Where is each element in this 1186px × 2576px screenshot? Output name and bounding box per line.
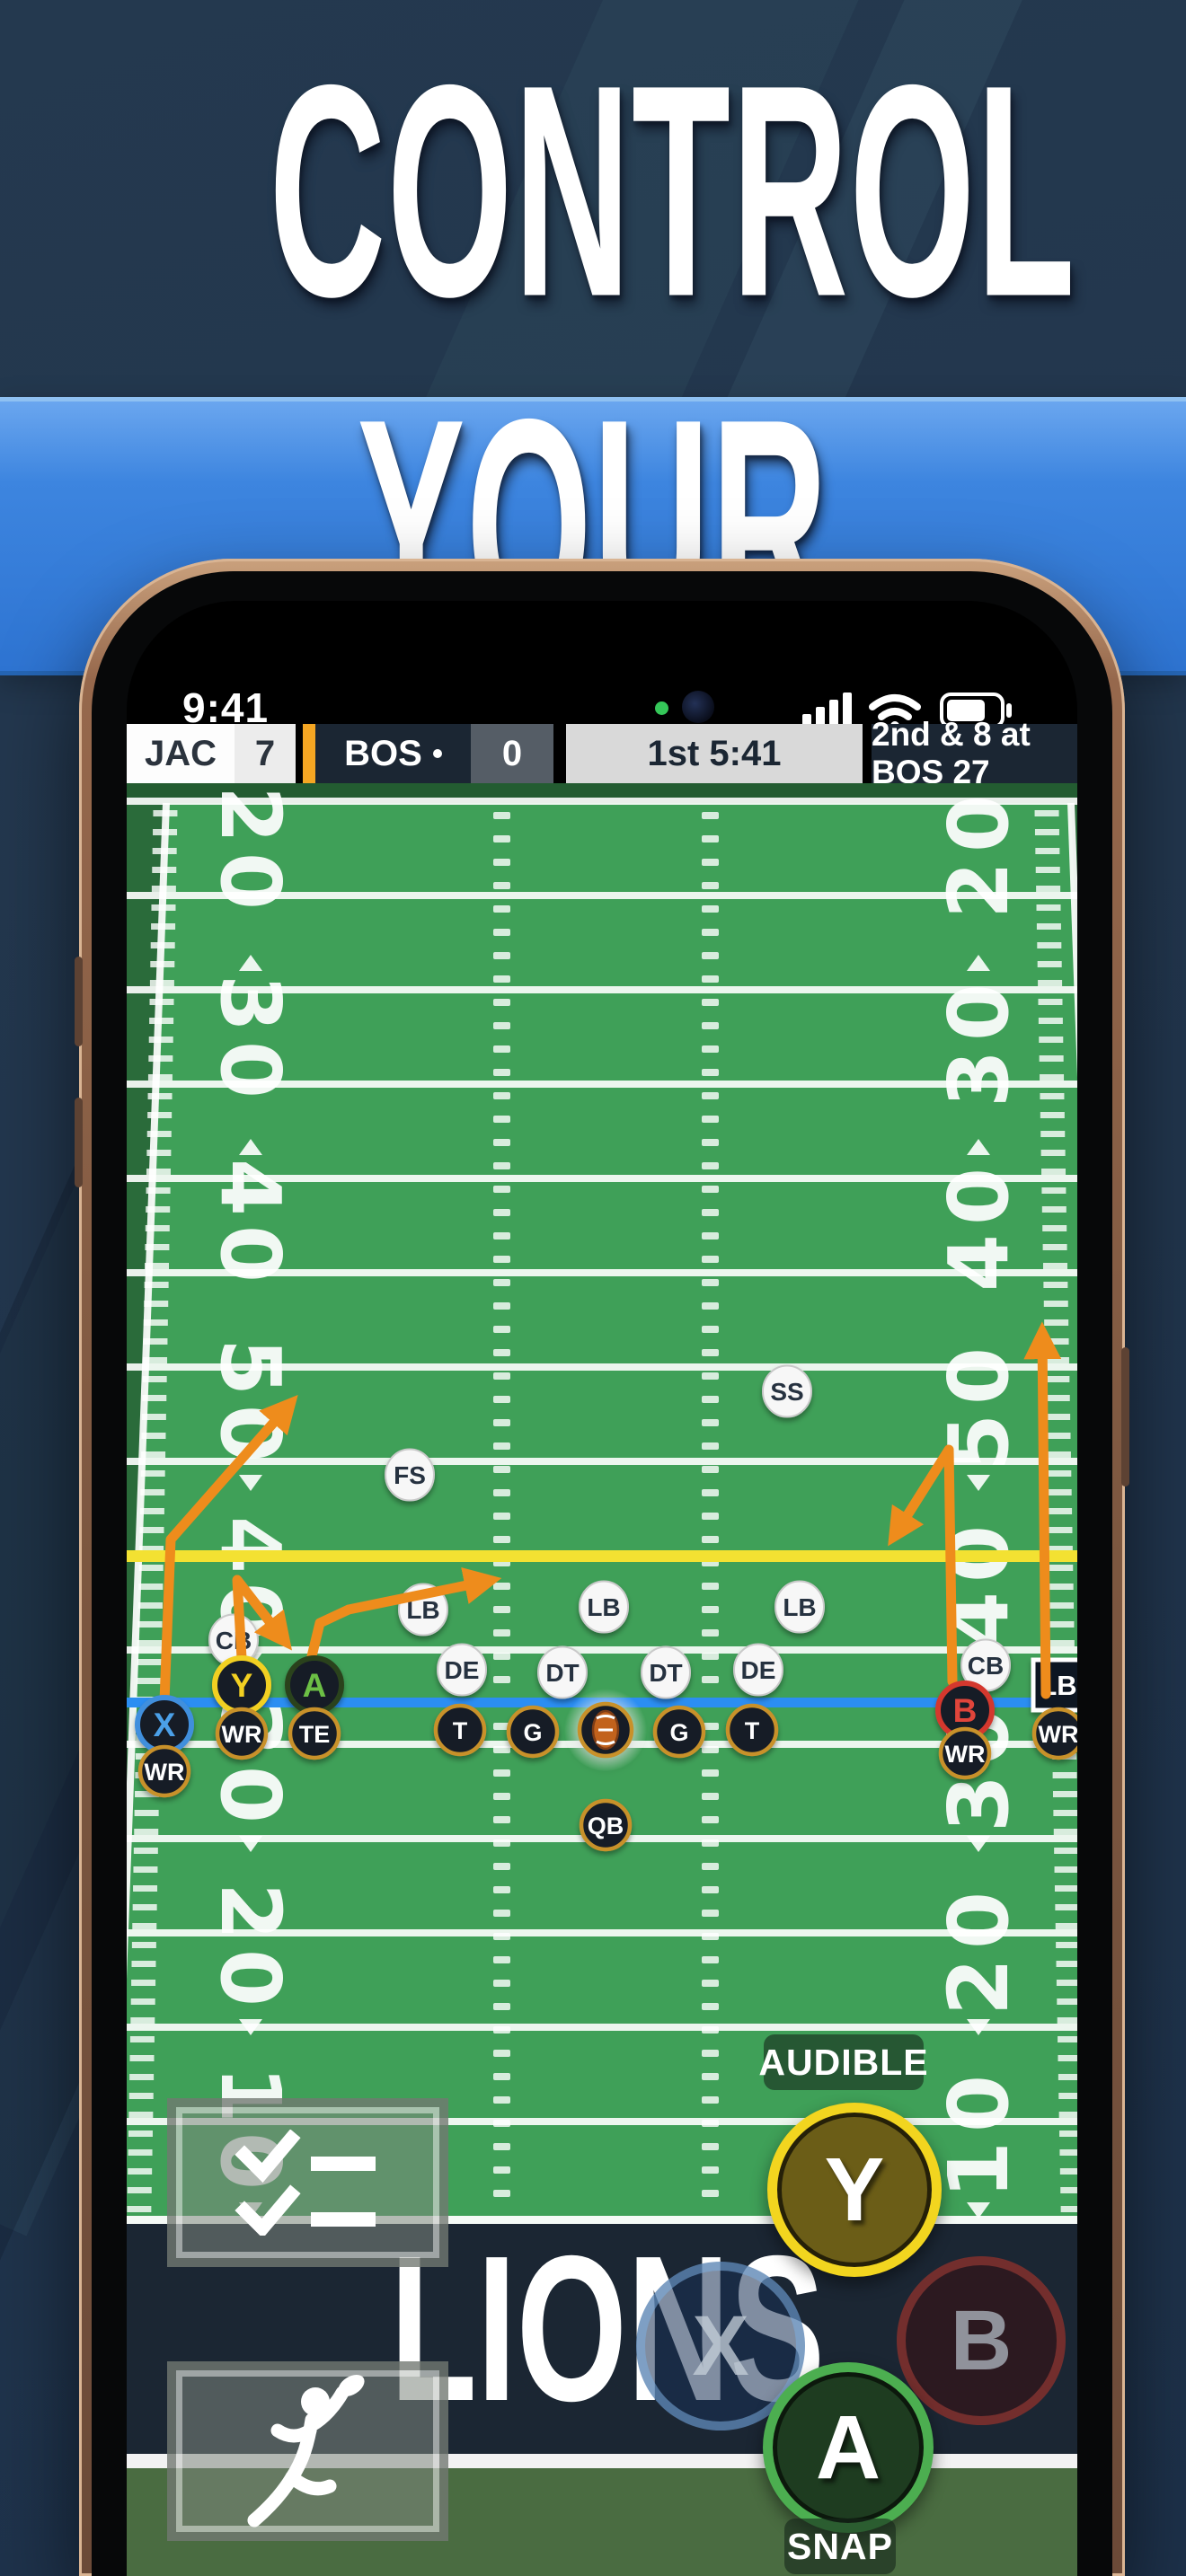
scoreboard-divider: [863, 724, 872, 783]
possession-accent-bar: [303, 724, 315, 783]
position-label: QB: [588, 1813, 624, 1839]
offense-player-chip[interactable]: BWR: [938, 1683, 992, 1778]
app-store-screenshot: CONTROL YOUR QB 9:41: [0, 0, 1186, 2576]
defense-player-chip: FS: [385, 1450, 434, 1501]
playcall-menu-button[interactable]: [167, 2098, 448, 2267]
position-label: T: [453, 1717, 468, 1744]
position-label: WR: [945, 1741, 986, 1768]
defense-player-chip: DE: [734, 1645, 783, 1696]
game-clock: 1st 5:41: [566, 724, 863, 783]
audible-y-button[interactable]: Y: [767, 2103, 942, 2277]
defense-player-label: LB: [587, 1593, 620, 1621]
snap-a-button[interactable]: A: [763, 2362, 934, 2533]
yard-number: 40: [931, 1159, 1027, 1292]
scoreboard-divider: [296, 724, 303, 783]
position-label: WR: [222, 1721, 262, 1748]
lineman-chip: QB: [581, 1801, 630, 1849]
position-label: G: [523, 1719, 542, 1746]
position-label: G: [669, 1719, 688, 1746]
lineman-chip: G: [655, 1707, 704, 1756]
defense-player-label: DE: [445, 1656, 480, 1684]
defense-player-chip: DT: [538, 1647, 587, 1698]
yard-number: 30: [202, 975, 298, 1107]
defense-player-label: CB: [216, 1627, 252, 1654]
playbook-checklist-icon: [232, 2130, 385, 2236]
phone-mockup: 9:41: [79, 559, 1125, 2576]
lineman-chip: T: [436, 1706, 484, 1754]
offense-player-chip: WR: [1034, 1709, 1077, 1758]
phone-screen: 9:41: [127, 601, 1077, 2576]
defense-player-chip: SS: [763, 1366, 811, 1417]
lineman-chip: T: [728, 1706, 776, 1754]
snap-label: SNAP: [784, 2519, 896, 2574]
volume-up-button: [75, 957, 83, 1046]
headline-top: CONTROL: [0, 56, 1186, 325]
lineman-chip: G: [509, 1707, 557, 1756]
home-team-name: BOS: [315, 724, 471, 783]
away-team-score: 7: [235, 724, 296, 783]
power-button: [1121, 1347, 1129, 1486]
defense-player-chip-boxed: LB: [1033, 1660, 1077, 1710]
receiver-letter: A: [303, 1667, 327, 1704]
position-label: T: [745, 1717, 760, 1744]
yard-number: 30: [931, 975, 1027, 1107]
phone-bezel: 9:41: [92, 571, 1112, 2576]
audible-label: AUDIBLE: [764, 2034, 924, 2090]
yard-number: 20: [931, 786, 1027, 919]
defense-player-label: DT: [545, 1659, 579, 1687]
scoreboard: JAC 7 BOS 0 1st 5:41 2nd & 8 at BOS 27: [127, 724, 1077, 783]
yard-number: 20: [931, 1883, 1027, 2016]
receiver-letter: B: [953, 1692, 978, 1729]
camera-indicator-dot: [655, 701, 668, 715]
first-down-line: [127, 1550, 1077, 1562]
yard-line: [127, 2024, 1077, 2031]
signal-icon: [802, 693, 852, 727]
away-team-name: JAC: [127, 724, 235, 783]
defense-player-chip: LB: [775, 1582, 824, 1633]
camera-lens: [682, 691, 714, 723]
defense-player-label: CB: [968, 1652, 1004, 1680]
home-team-score: 0: [471, 724, 553, 783]
possession-dot: [433, 749, 442, 758]
yard-number: 10: [931, 2066, 1027, 2199]
down-and-distance: 2nd & 8 at BOS 27: [872, 724, 1077, 783]
position-label: WR: [1039, 1721, 1077, 1748]
scoreboard-divider: [553, 724, 566, 783]
defense-player-label: FS: [394, 1461, 426, 1489]
position-label: WR: [145, 1759, 185, 1786]
receiver-letter: Y: [231, 1667, 253, 1704]
defense-player-label: DT: [649, 1659, 682, 1687]
volume-down-button: [75, 1098, 83, 1187]
yard-number: 40: [202, 1159, 298, 1292]
defense-player-chip: DE: [438, 1645, 486, 1696]
yard-number: 20: [202, 786, 298, 919]
receiver-letter: X: [154, 1707, 176, 1743]
defense-player-chip: LB: [580, 1582, 628, 1633]
football-chip: [564, 1689, 647, 1771]
qb-throw-icon: [236, 2373, 380, 2530]
headline-top-text: CONTROL: [269, 40, 1075, 341]
defense-player-label: DE: [741, 1656, 776, 1684]
defense-player-label: SS: [770, 1378, 803, 1406]
defense-player-chip: DT: [642, 1647, 690, 1698]
home-team-label: BOS: [344, 734, 422, 774]
defense-player-label: LB: [783, 1593, 816, 1621]
route-wr-streak: [1042, 1335, 1046, 1694]
audible-b-button[interactable]: B: [897, 2256, 1066, 2425]
offense-player-chip[interactable]: XWR: [137, 1698, 191, 1795]
scramble-mode-button[interactable]: [167, 2361, 448, 2541]
position-label: TE: [299, 1721, 331, 1748]
yard-number: 20: [202, 1883, 298, 2016]
